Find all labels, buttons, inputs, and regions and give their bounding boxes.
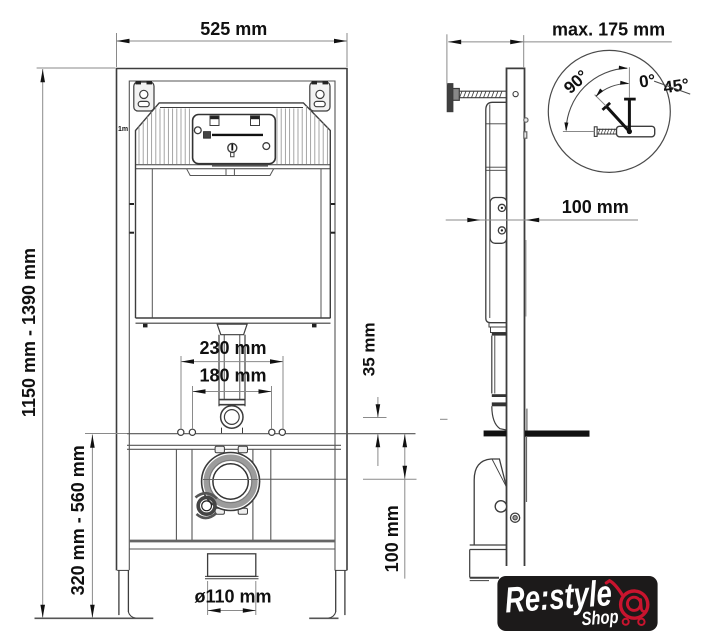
svg-text:100 mm: 100 mm [382, 505, 402, 572]
svg-text:ø110 mm: ø110 mm [194, 587, 271, 607]
svg-text:1150 mm - 1390 mm: 1150 mm - 1390 mm [19, 248, 39, 417]
svg-text:1m: 1m [118, 126, 128, 133]
svg-text:100 mm: 100 mm [562, 197, 629, 217]
svg-text:Shop: Shop [581, 607, 619, 631]
svg-text:max. 175 mm: max. 175 mm [552, 20, 665, 40]
svg-text:0°: 0° [638, 70, 657, 91]
svg-text:180 mm: 180 mm [199, 366, 266, 386]
svg-text:230 mm: 230 mm [199, 338, 266, 358]
svg-text:35 mm: 35 mm [360, 322, 379, 376]
svg-text:525 mm: 525 mm [200, 19, 267, 39]
svg-text:320 mm - 560 mm: 320 mm - 560 mm [68, 445, 88, 595]
